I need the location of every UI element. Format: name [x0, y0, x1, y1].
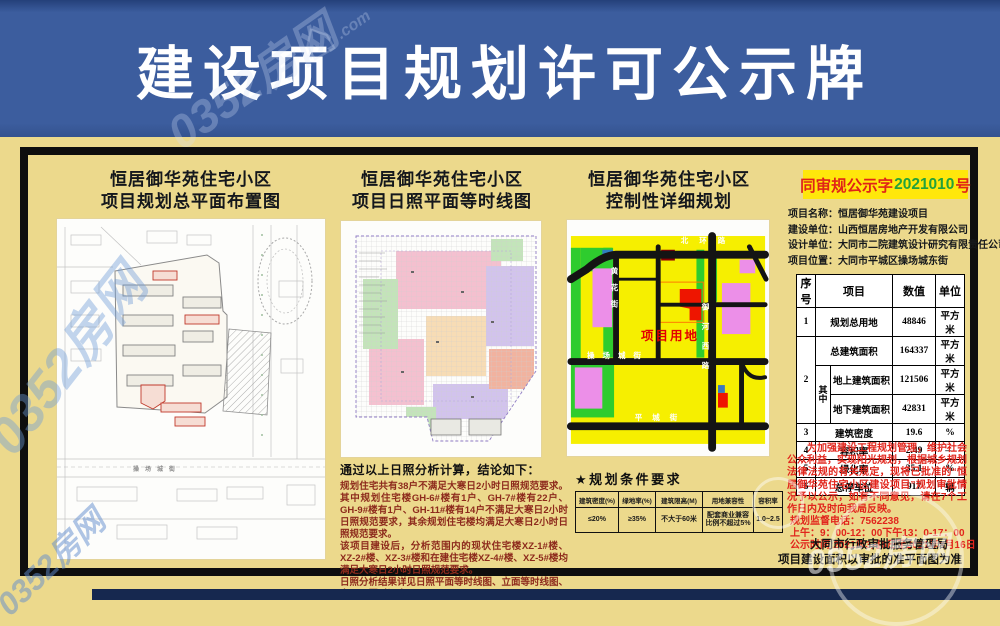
site-plan-title-line1: 恒居御华苑住宅小区 [40, 169, 342, 191]
doc-no-suffix: 号 [955, 174, 971, 196]
cond-header-far: 容积率 [754, 492, 783, 508]
sunshine-drawing [341, 221, 541, 457]
sunshine-conclusion: 通过以上日照分析计算，结论如下： 规划住宅共有38户不满足大寒日2小时日照规范要… [340, 461, 568, 601]
regulatory-map: 北环路 操场城街 平城街 御河西路 黄花街 项目用地 [567, 220, 769, 456]
info-location: 项目位置：大同市平城区操场城东街 [788, 254, 968, 270]
conclusion-paragraph-2: 该项目建设后，分析范围内的现状住宅楼XZ-1#楼、XZ-2#楼、XZ-3#楼和在… [340, 541, 568, 577]
sunshine-title: 恒居御华苑住宅小区 项目日照平面等时线图 [338, 169, 546, 213]
doc-no-number: 2021010 [893, 176, 955, 194]
site-plan-drawing [57, 219, 325, 559]
conclusion-heading: 通过以上日照分析计算，结论如下： [340, 461, 568, 478]
site-plan-title-line2: 项目规划总平面布置图 [40, 191, 342, 213]
agency-signature: 大同市行政审批服务管理局 项目建设面积以审批的准平面图为准 [756, 538, 962, 568]
th-unit: 单位 [936, 275, 965, 308]
cond-value-height: 不大于60米 [656, 508, 703, 533]
regulatory-title-line2: 控制性详细规划 [563, 191, 775, 213]
cond-header-green: 绿地率(%) [619, 492, 656, 508]
regulatory-title: 恒居御华苑住宅小区 控制性详细规划 [563, 169, 775, 213]
cond-value-compat: 配套商业兼容比例不超过5% [703, 508, 754, 533]
board-title: 建设项目规划许可公示牌 [0, 0, 1000, 137]
road-label-west: 黄花街 [609, 267, 620, 347]
notice-phone: 规划监督电话：7562238 [787, 516, 967, 528]
sunshine-title-line1: 恒居御华苑住宅小区 [338, 169, 546, 191]
public-notice: 为加强建设工程规划管理，维护社会公众利益，实现阳光规划，根据城乡规划法律法规的有… [787, 443, 967, 552]
cond-value-far: 1.0~2.5 [754, 508, 783, 533]
road-label-east: 御河西路 [700, 303, 711, 411]
table-row: 3 建筑密度 19.6 % [797, 424, 965, 442]
th-value: 数值 [893, 275, 936, 308]
notice-body: 为加强建设工程规划管理，维护社会公众利益，实现阳光规划，根据城乡规划法律法规的有… [787, 443, 967, 516]
info-builder: 建设单位：山西恒居房地产开发有限公司 [788, 223, 968, 239]
conclusion-paragraph-1: 规划住宅共有38户不满足大寒日2小时日照规范要求。其中规划住宅楼GH-6#楼有1… [340, 481, 568, 541]
table-row: 2 总建筑面积 164337 平方米 [797, 337, 965, 366]
cond-value-green: ≥35% [619, 508, 656, 533]
cond-header-compat: 用地兼容性 [703, 492, 754, 508]
info-project-name: 项目名称：恒居御华苑建设项目 [788, 207, 968, 223]
road-label-south: 平城街 [619, 412, 693, 423]
project-site-label: 项目用地 [625, 325, 715, 344]
cond-value-density: ≤20% [576, 508, 619, 533]
site-plan-title: 恒居御华苑住宅小区 项目规划总平面布置图 [40, 169, 342, 213]
table-row: 其中 地上建筑面积 121506 平方米 [797, 366, 965, 395]
site-plan-map: 操场城街 [57, 219, 325, 559]
board-header: 建设项目规划许可公示牌 [0, 0, 1000, 137]
zhong-cell: 其中 [816, 366, 831, 424]
planning-conditions-heading: ★规划条件要求 [575, 469, 682, 488]
agency-name: 大同市行政审批服务管理局 [756, 538, 962, 553]
planning-conditions-table: 建筑密度(%) 绿地率(%) 建筑限高(M) 用地兼容性 容积率 ≤20% ≥3… [575, 491, 783, 533]
cond-header-height: 建筑限高(M) [656, 492, 703, 508]
th-no: 序号 [797, 275, 816, 308]
permit-doc-number: 同审规公示字2021010号 [803, 170, 968, 199]
sunshine-map [341, 221, 541, 457]
table-row: 1 规划总用地 48846 平方米 [797, 308, 965, 337]
info-designer: 设计单位：大同市二院建筑设计研究有限责任公司 [788, 238, 968, 254]
bottom-strip [92, 589, 1000, 600]
road-label-north: 北环路 [663, 235, 743, 246]
indicators-header-row: 序号 项目 数值 单位 [797, 275, 965, 308]
th-item: 项目 [816, 275, 893, 308]
regulatory-title-line1: 恒居御华苑住宅小区 [563, 169, 775, 191]
permit-info-list: 项目名称：恒居御华苑建设项目 建设单位：山西恒居房地产开发有限公司 设计单位：大… [788, 207, 968, 269]
doc-no-prefix: 同审规公示字 [800, 174, 893, 196]
conditions-header-row: 建筑密度(%) 绿地率(%) 建筑限高(M) 用地兼容性 容积率 [576, 492, 783, 508]
agency-footnote: 项目建设面积以审批的准平面图为准 [756, 553, 962, 568]
hatched-parcel [223, 329, 271, 415]
site-plan-road-label: 操场城街 [97, 464, 217, 473]
conditions-value-row: ≤20% ≥35% 不大于60米 配套商业兼容比例不超过5% 1.0~2.5 [576, 508, 783, 533]
sunshine-title-line2: 项目日照平面等时线图 [338, 191, 546, 213]
cond-header-density: 建筑密度(%) [576, 492, 619, 508]
road-label-mid: 操场城街 [570, 350, 658, 361]
